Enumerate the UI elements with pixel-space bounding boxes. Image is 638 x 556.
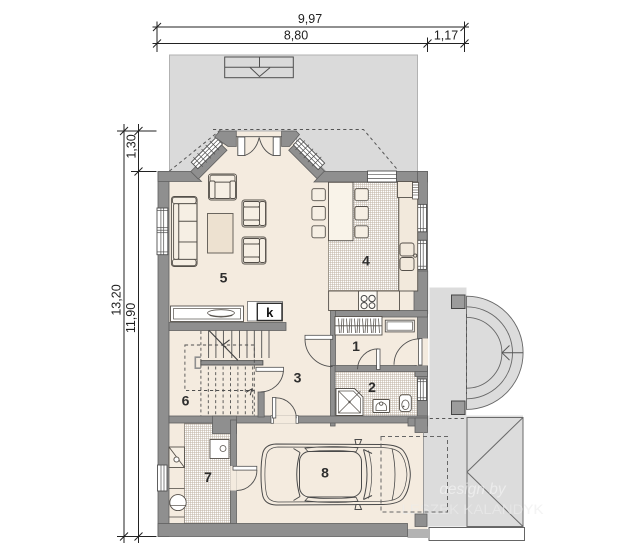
svg-text:2: 2 (368, 379, 376, 395)
svg-text:1: 1 (352, 338, 360, 354)
svg-text:9,97: 9,97 (298, 12, 322, 26)
svg-text:4: 4 (362, 253, 370, 269)
svg-text:design by: design by (439, 481, 507, 498)
svg-text:k: k (266, 305, 274, 320)
svg-text:13,20: 13,20 (110, 284, 124, 315)
svg-text:6: 6 (182, 393, 190, 409)
svg-text:1,17: 1,17 (434, 29, 458, 43)
svg-text:3: 3 (294, 370, 302, 386)
svg-text:8: 8 (321, 465, 329, 481)
svg-text:11,90: 11,90 (124, 303, 138, 333)
svg-text:8,80: 8,80 (284, 29, 308, 43)
svg-text:7: 7 (204, 469, 212, 485)
svg-text:1,30: 1,30 (125, 134, 139, 158)
svg-text:5: 5 (220, 270, 228, 286)
